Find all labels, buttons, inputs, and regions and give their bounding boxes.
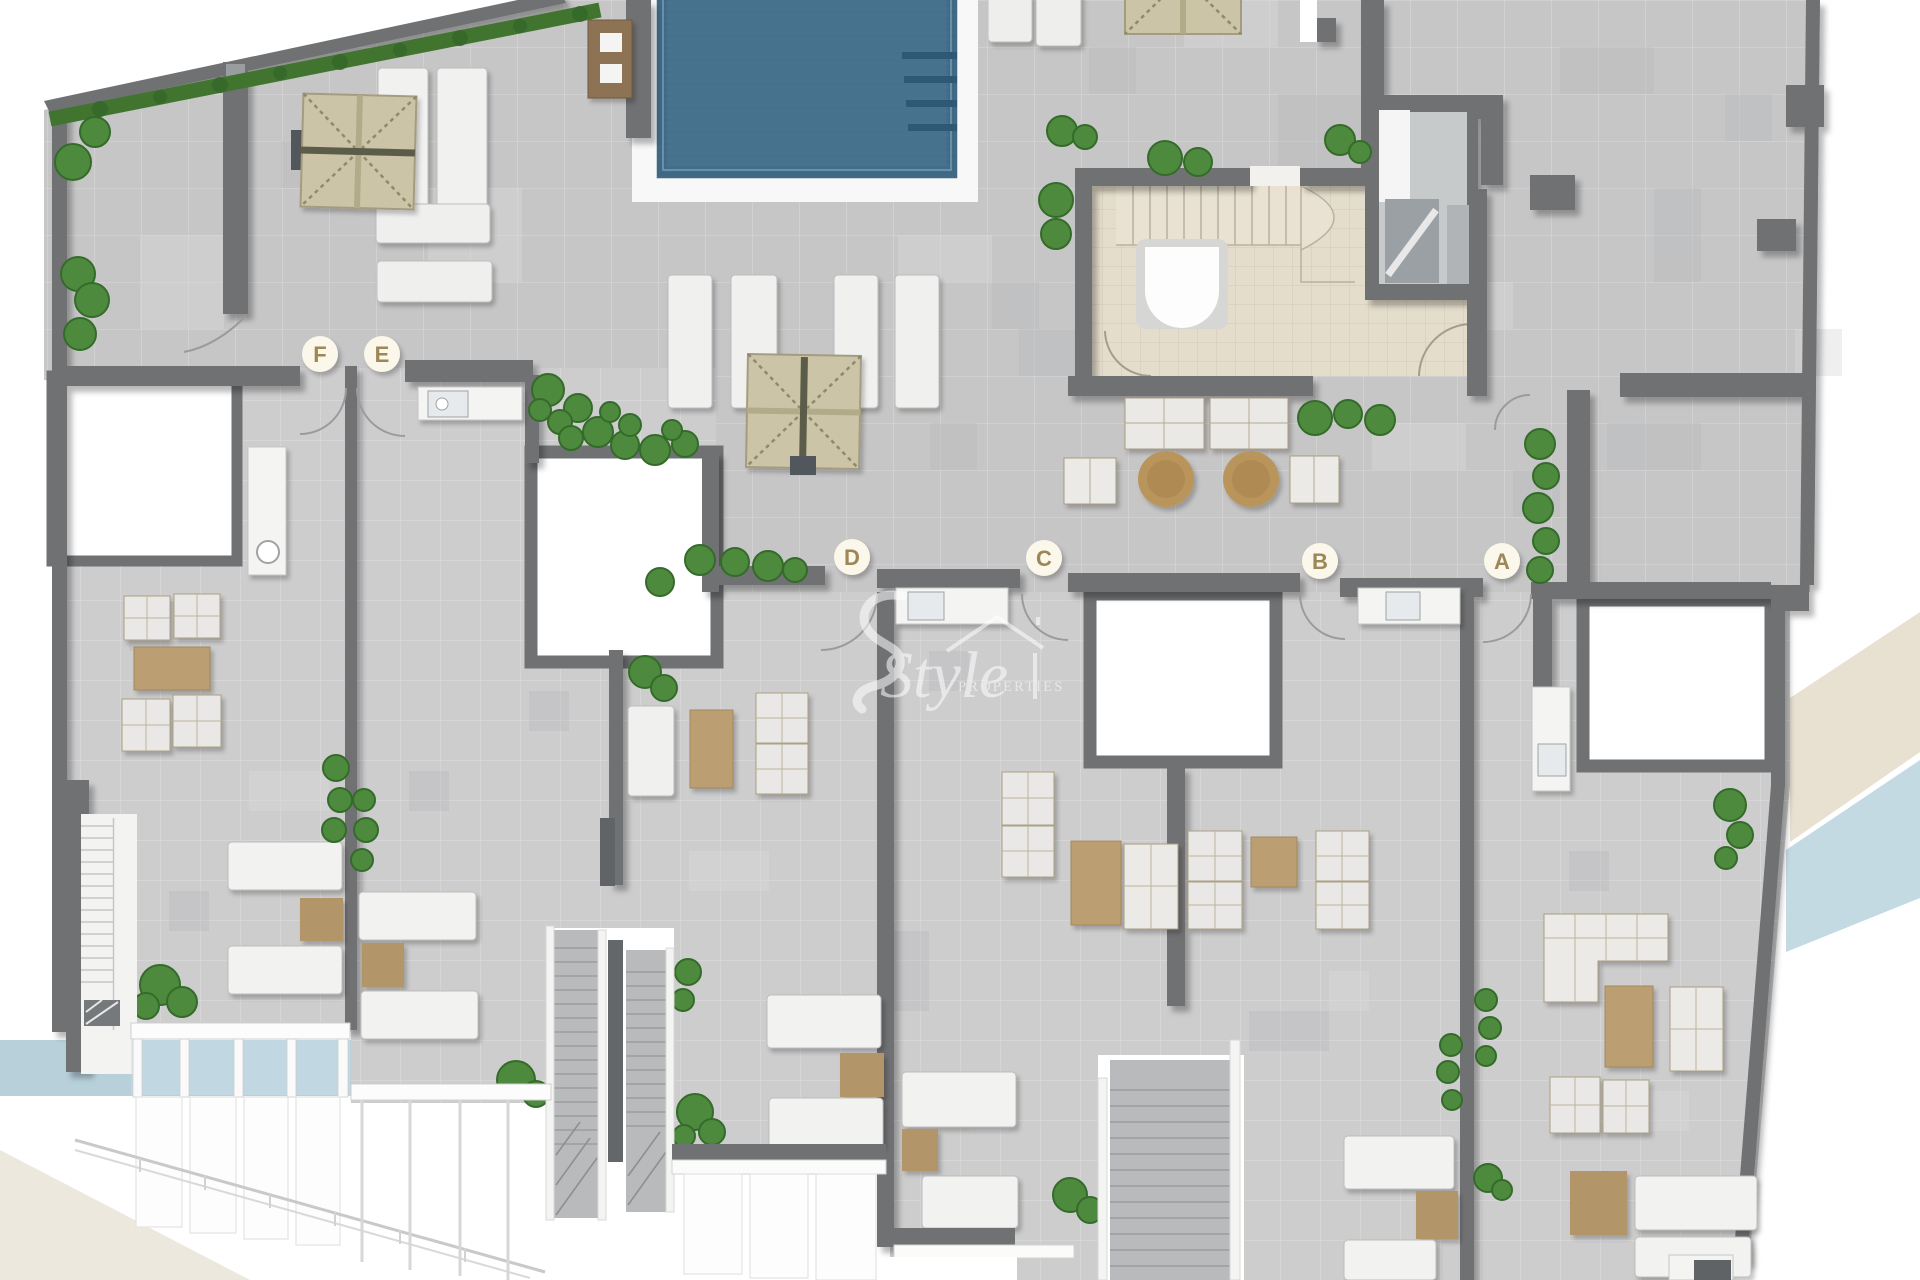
svg-text:A: A — [1494, 549, 1510, 574]
svg-text:E: E — [375, 342, 390, 367]
svg-text:D: D — [844, 545, 860, 570]
svg-text:C: C — [1036, 546, 1052, 571]
svg-text:PROPERTIES: PROPERTIES — [958, 679, 1065, 695]
svg-text:B: B — [1312, 549, 1328, 574]
svg-text:Style: Style — [880, 639, 1008, 712]
svg-text:F: F — [313, 342, 326, 367]
